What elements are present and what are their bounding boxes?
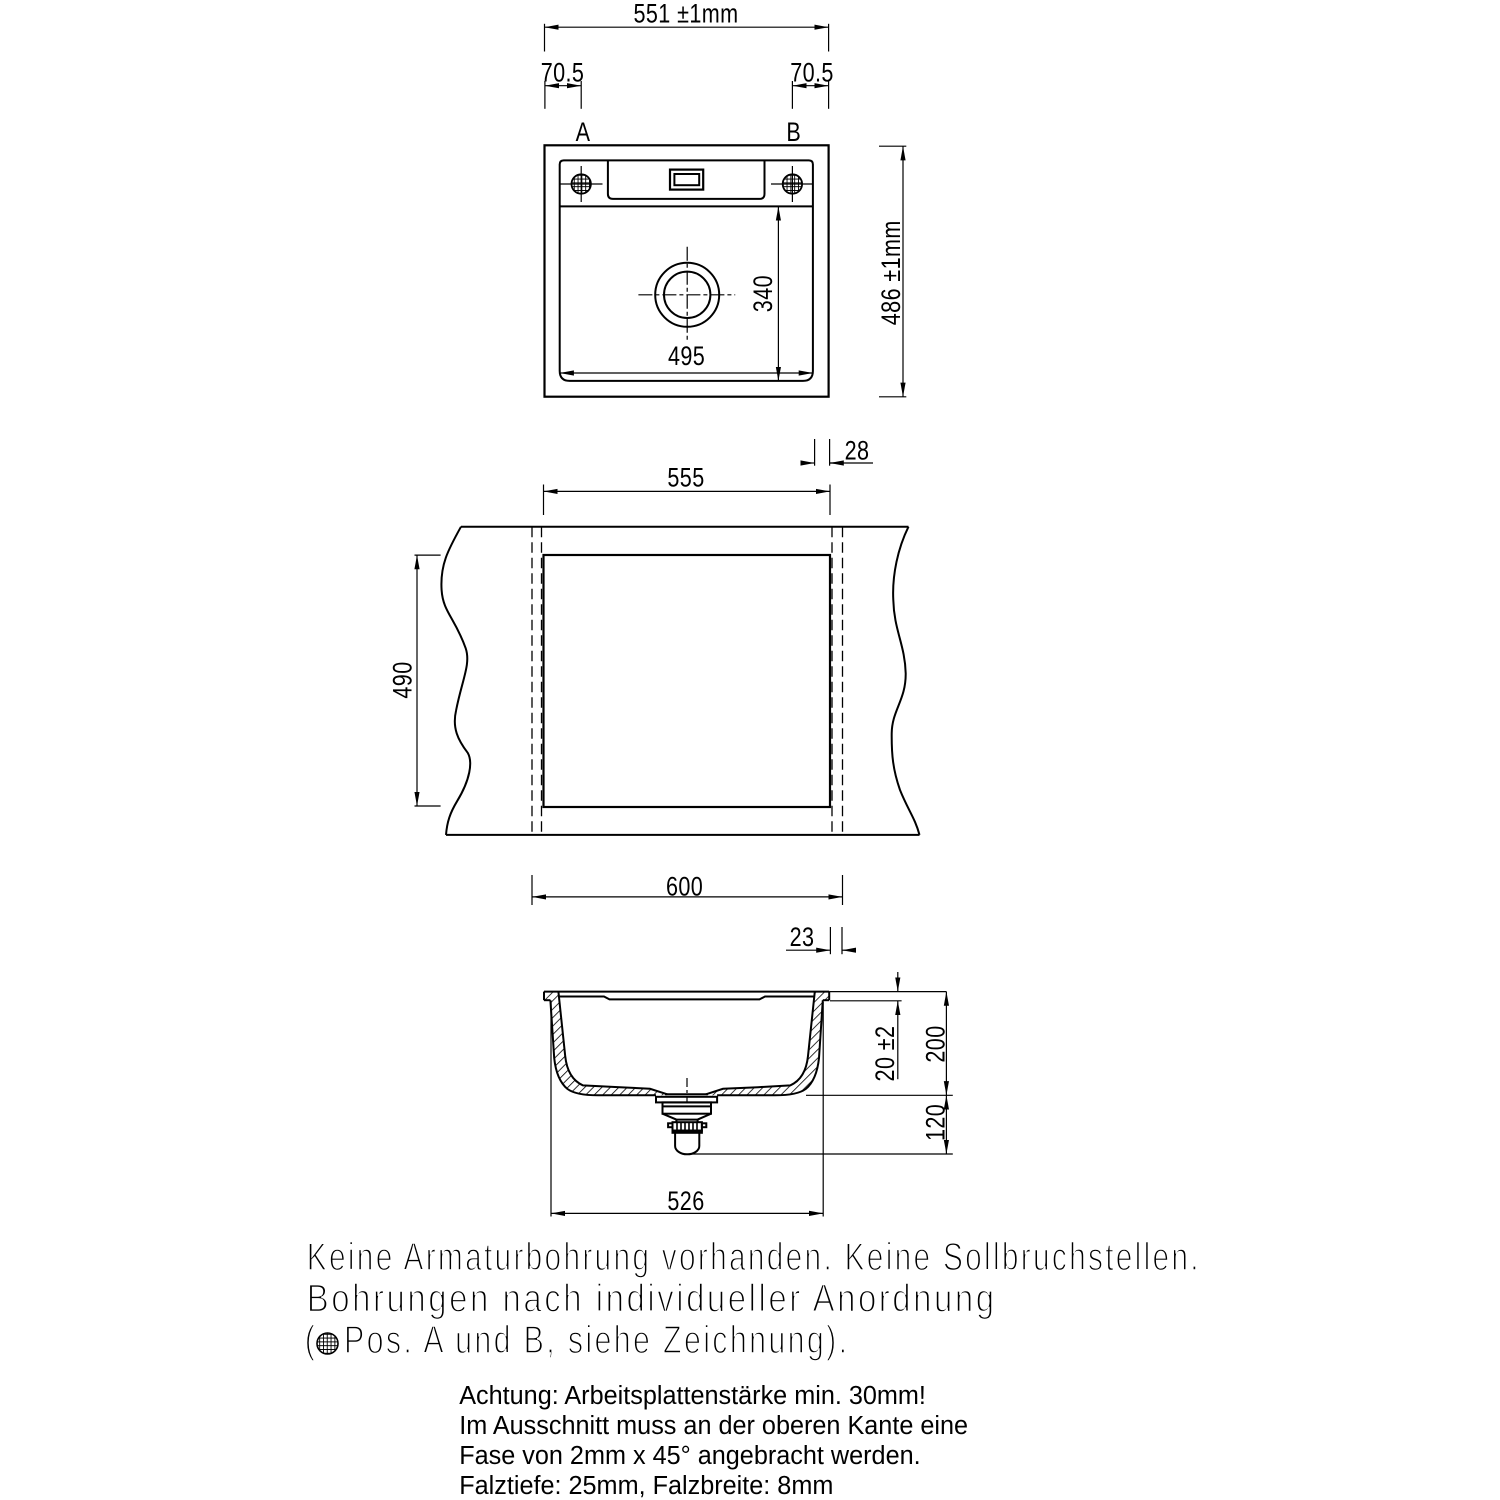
svg-text:120: 120 — [921, 1104, 951, 1141]
svg-text:526: 526 — [667, 1187, 704, 1217]
svg-text:23: 23 — [790, 923, 815, 953]
svg-text:Im Ausschnitt muss an der ober: Im Ausschnitt muss an der oberen Kante e… — [459, 1412, 968, 1440]
svg-text:200: 200 — [921, 1025, 951, 1062]
svg-text:486 ±1mm: 486 ±1mm — [877, 220, 907, 325]
svg-text:Bohrungen nach individueller A: Bohrungen nach individueller Anordnung — [307, 1276, 997, 1320]
svg-text:555: 555 — [667, 463, 704, 493]
svg-text:Fase von 2mm x 45° angebracht: Fase von 2mm x 45° angebracht werden. — [459, 1442, 920, 1470]
svg-text:490: 490 — [388, 661, 418, 698]
svg-text:20 ±2: 20 ±2 — [871, 1026, 901, 1082]
svg-text:Keine Armaturbohrung vorhanden: Keine Armaturbohrung vorhanden. Keine So… — [307, 1236, 1201, 1279]
svg-text:70.5: 70.5 — [790, 58, 834, 88]
svg-text:495: 495 — [668, 342, 705, 372]
svg-text:Achtung: Arbeitsplattenstärke: Achtung: Arbeitsplattenstärke min. 30mm! — [459, 1382, 926, 1410]
svg-text:B: B — [786, 118, 801, 148]
svg-text:28: 28 — [845, 437, 870, 467]
svg-text:(: ( — [305, 1318, 317, 1361]
svg-text:Falztiefe: 25mm, Falzbreite: 8: Falztiefe: 25mm, Falzbreite: 8mm — [459, 1471, 833, 1499]
svg-text:A: A — [576, 118, 591, 148]
svg-text:600: 600 — [666, 872, 703, 902]
svg-text:70.5: 70.5 — [541, 58, 585, 88]
svg-text:340: 340 — [749, 275, 779, 312]
svg-text:Pos. A und B, siehe Zeichnung): Pos. A und B, siehe Zeichnung). — [344, 1318, 849, 1361]
svg-text:551 ±1mm: 551 ±1mm — [633, 0, 738, 29]
